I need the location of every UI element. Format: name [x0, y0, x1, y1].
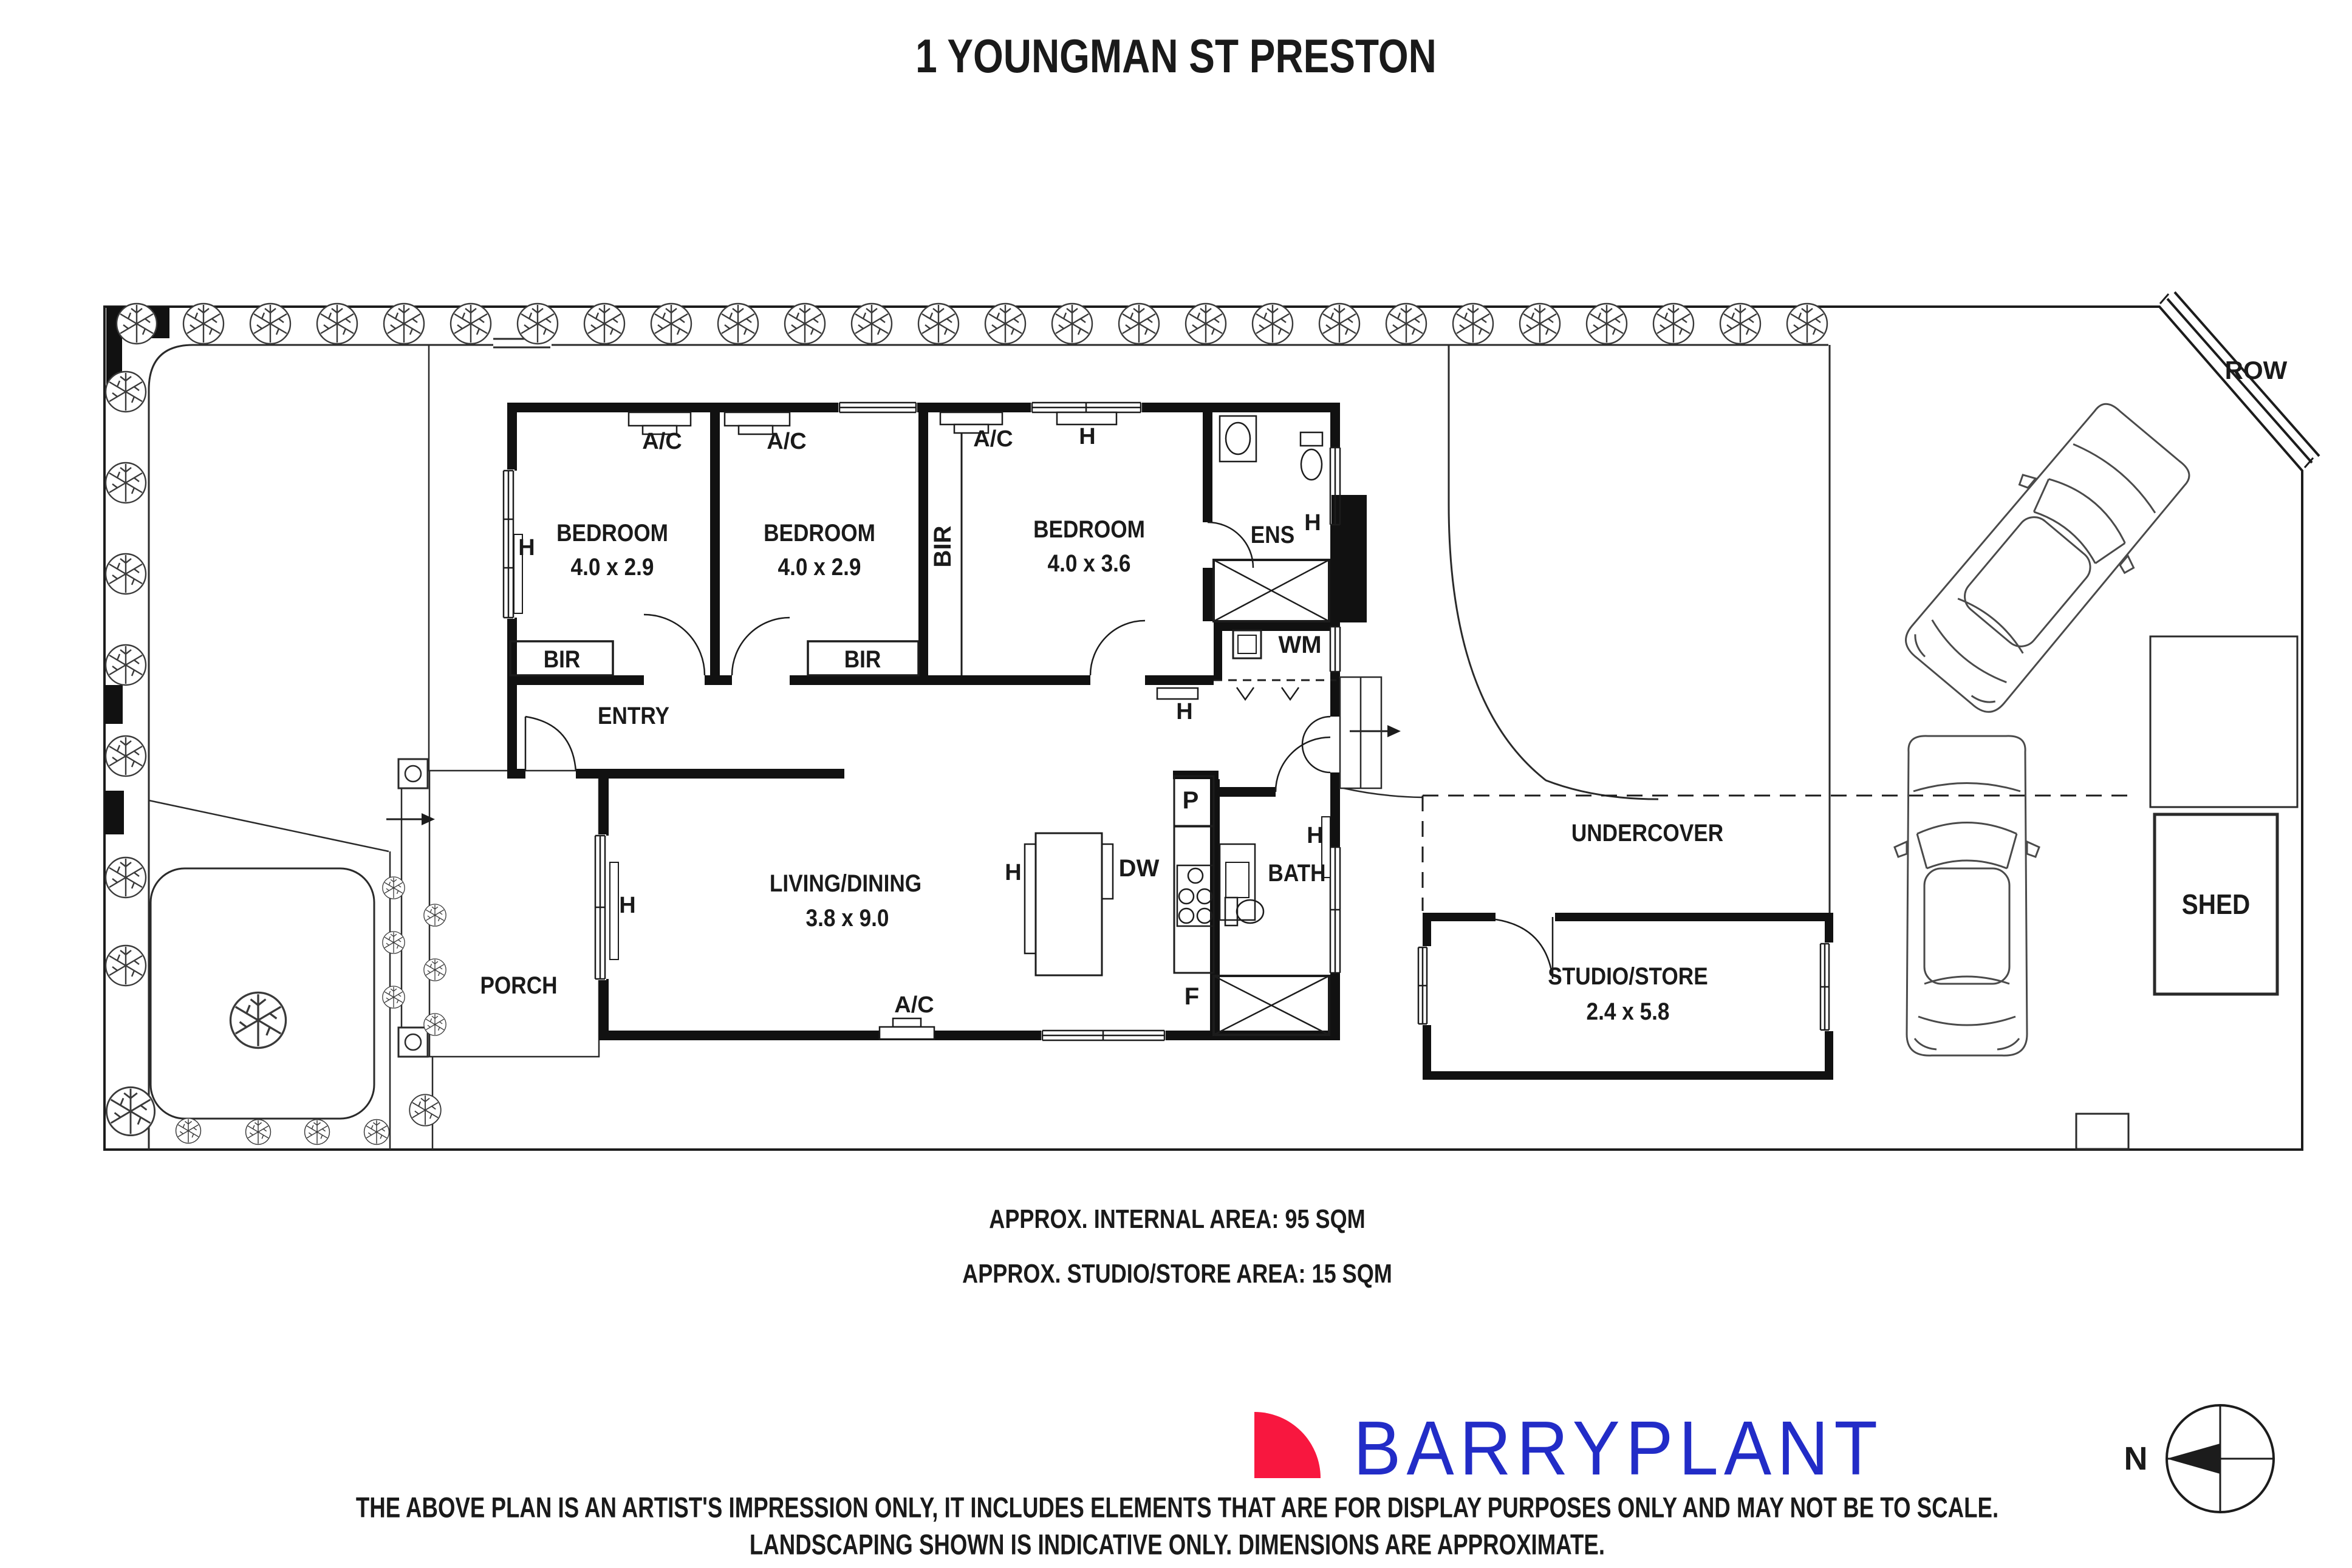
- label-bir-3: BIR: [931, 526, 955, 568]
- label-studio-dims: 2.4 x 5.8: [1586, 1000, 1669, 1024]
- disclaimer-line-2: LANDSCAPING SHOWN IS INDICATIVE ONLY. DI…: [750, 1530, 1605, 1559]
- label-bir-1: BIR: [544, 647, 581, 672]
- label-bedroom2-dims: 4.0 x 2.9: [778, 555, 861, 579]
- label-bedroom2-name: BEDROOM: [764, 521, 875, 545]
- label-living-name: LIVING/DINING: [770, 871, 921, 896]
- label-bedroom3-name: BEDROOM: [1033, 517, 1145, 542]
- label-ac-living: A/C: [894, 994, 934, 1017]
- page-title: 1 YOUNGMAN ST PRESTON: [915, 32, 1437, 80]
- label-living-dims: 3.8 x 9.0: [805, 906, 889, 930]
- label-h-hall: H: [1176, 700, 1192, 723]
- label-wm: WM: [1278, 633, 1321, 657]
- label-h-bed1: H: [518, 536, 535, 559]
- label-bedroom1-name: BEDROOM: [556, 521, 668, 545]
- floor-plan-drawing: [0, 0, 2352, 1568]
- floor-plan-page: { "title": "1 YOUNGMAN ST PRESTON", "pla…: [0, 0, 2352, 1568]
- label-entry: ENTRY: [598, 704, 669, 728]
- label-h-island: H: [1005, 861, 1021, 884]
- car-driveway-1: [1889, 390, 2206, 728]
- label-bedroom3-dims: 4.0 x 3.6: [1047, 551, 1130, 576]
- label-h-bed3: H: [1079, 425, 1095, 448]
- label-h-bath: H: [1307, 824, 1323, 847]
- label-ac-bed3: A/C: [973, 428, 1013, 451]
- label-h-ens: H: [1304, 511, 1321, 534]
- label-ac-bed2: A/C: [767, 430, 806, 453]
- disclaimer-line-1: THE ABOVE PLAN IS AN ARTIST'S IMPRESSION…: [356, 1493, 1998, 1522]
- label-dw: DW: [1119, 856, 1160, 881]
- doors: [525, 522, 1553, 979]
- label-bir-2: BIR: [844, 647, 881, 672]
- label-ac-bed1: A/C: [642, 430, 682, 453]
- area-studio-store: APPROX. STUDIO/STORE AREA: 15 SQM: [962, 1261, 1392, 1287]
- label-shed: SHED: [2182, 890, 2250, 918]
- brand-mark-icon: [1254, 1412, 1321, 1478]
- area-internal: APPROX. INTERNAL AREA: 95 SQM: [989, 1206, 1365, 1233]
- label-ens: ENS: [1251, 523, 1294, 547]
- label-f: F: [1185, 984, 1199, 1009]
- label-row: ROW: [2225, 358, 2288, 383]
- studio-walls: [1423, 913, 1833, 1080]
- entry-arrow-side: [1350, 725, 1401, 737]
- tree-column-left: [106, 372, 146, 986]
- north-compass-icon: [2167, 1405, 2274, 1512]
- rear-landing: [1340, 677, 1381, 788]
- car-driveway-2: [1895, 736, 2039, 1055]
- label-porch: PORCH: [480, 973, 557, 998]
- chimney-block: [1332, 495, 1367, 622]
- ac-units: [629, 412, 1002, 1039]
- label-studio-name: STUDIO/STORE: [1548, 964, 1708, 989]
- label-bedroom1-dims: 4.0 x 2.9: [570, 555, 654, 579]
- brand-logo-text: BARRYPLANT: [1353, 1404, 1883, 1492]
- shrubs-porch: [383, 877, 446, 1035]
- entry-arrow-front: [386, 813, 435, 825]
- label-undercover: UNDERCOVER: [1571, 821, 1723, 845]
- tree-row-top: [117, 304, 1827, 344]
- compass-n-label: N: [2124, 1442, 2148, 1475]
- label-h-living: H: [619, 894, 635, 917]
- label-p: P: [1183, 788, 1199, 813]
- label-bath: BATH: [1268, 861, 1325, 885]
